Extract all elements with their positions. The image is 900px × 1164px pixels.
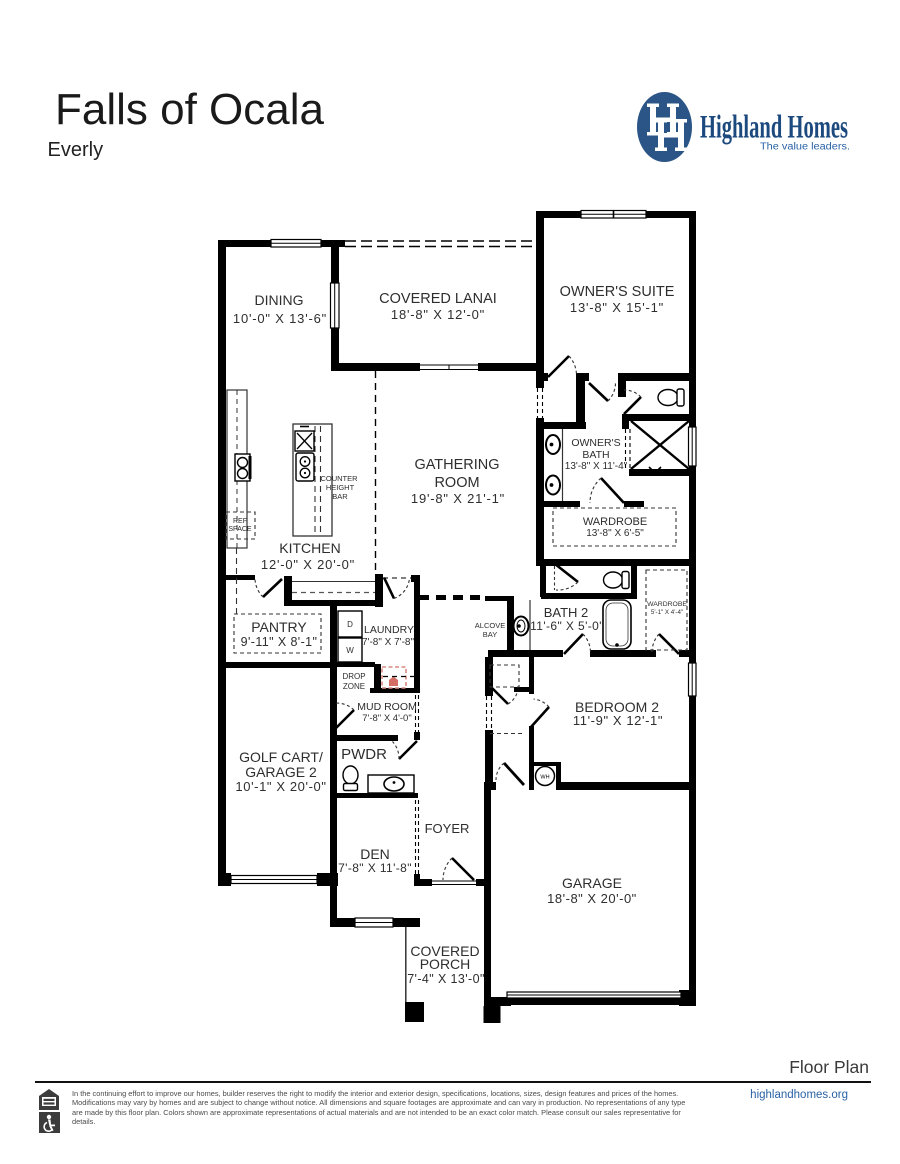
svg-text:PORCH: PORCH: [420, 956, 471, 972]
svg-text:DEN: DEN: [360, 846, 390, 862]
svg-text:BATH: BATH: [582, 449, 609, 461]
svg-text:BAY: BAY: [483, 630, 497, 639]
svg-text:13'-8" X 6'-5": 13'-8" X 6'-5": [586, 528, 644, 539]
svg-text:SPACE: SPACE: [228, 526, 252, 533]
svg-text:10'-1" X 20'-0": 10'-1" X 20'-0": [235, 779, 326, 794]
svg-text:WARDROBE: WARDROBE: [647, 601, 687, 608]
svg-text:7'-8" X 7'-8": 7'-8" X 7'-8": [362, 637, 415, 648]
svg-text:7'-4" X 13'-0": 7'-4" X 13'-0": [407, 972, 485, 986]
svg-text:GARAGE: GARAGE: [562, 875, 622, 891]
svg-text:OWNER'S: OWNER'S: [571, 437, 620, 449]
svg-text:KITCHEN: KITCHEN: [279, 540, 340, 556]
svg-text:7'-8" X 11'-8": 7'-8" X 11'-8": [338, 861, 412, 875]
svg-text:ZONE: ZONE: [343, 682, 365, 691]
svg-text:MUD ROOM: MUD ROOM: [357, 701, 417, 713]
svg-text:WARDROBE: WARDROBE: [583, 516, 647, 528]
svg-text:COVERED LANAI: COVERED LANAI: [379, 291, 497, 307]
svg-text:18'-8" X 12'-0": 18'-8" X 12'-0": [391, 307, 485, 322]
svg-text:19'-8" X 21'-1": 19'-8" X 21'-1": [411, 491, 505, 506]
svg-text:REF: REF: [233, 518, 247, 525]
svg-text:WH: WH: [540, 775, 549, 781]
svg-text:DINING: DINING: [255, 292, 304, 308]
svg-text:ALCOVE: ALCOVE: [475, 621, 505, 630]
svg-text:HEIGHT: HEIGHT: [326, 483, 355, 492]
svg-text:13'-8" X 15'-1": 13'-8" X 15'-1": [570, 300, 664, 315]
svg-text:GATHERING: GATHERING: [414, 457, 499, 473]
svg-text:W: W: [346, 646, 354, 655]
svg-text:OWNER'S SUITE: OWNER'S SUITE: [560, 284, 675, 300]
svg-text:COUNTER: COUNTER: [320, 474, 358, 483]
svg-text:FOYER: FOYER: [425, 821, 470, 836]
svg-text:PANTRY: PANTRY: [251, 619, 307, 635]
svg-text:7'-8" X 4'-0": 7'-8" X 4'-0": [362, 713, 411, 724]
svg-text:9'-11" X 8'-1": 9'-11" X 8'-1": [241, 635, 318, 649]
svg-text:GOLF CART/: GOLF CART/: [239, 749, 323, 765]
svg-text:12'-0" X 20'-0": 12'-0" X 20'-0": [261, 557, 355, 572]
svg-text:10'-0" X 13'-6": 10'-0" X 13'-6": [233, 311, 327, 326]
svg-text:13'-8" X 11'-4": 13'-8" X 11'-4": [565, 461, 628, 472]
svg-text:PWDR: PWDR: [341, 746, 387, 763]
svg-text:11'-9" X 12'-1": 11'-9" X 12'-1": [573, 713, 663, 728]
svg-text:GARAGE 2: GARAGE 2: [245, 764, 317, 780]
svg-text:18'-8" X 20'-0": 18'-8" X 20'-0": [547, 891, 637, 906]
svg-text:DROP: DROP: [342, 672, 365, 681]
svg-text:BATH 2: BATH 2: [544, 605, 589, 620]
svg-text:11'-6" X 5'-0": 11'-6" X 5'-0": [530, 619, 604, 633]
svg-text:BAR: BAR: [332, 492, 348, 501]
svg-text:D: D: [347, 620, 353, 629]
svg-text:5'-1" X 4'-4": 5'-1" X 4'-4": [651, 609, 683, 616]
svg-text:ROOM: ROOM: [434, 475, 479, 491]
svg-text:LAUNDRY: LAUNDRY: [364, 624, 414, 636]
